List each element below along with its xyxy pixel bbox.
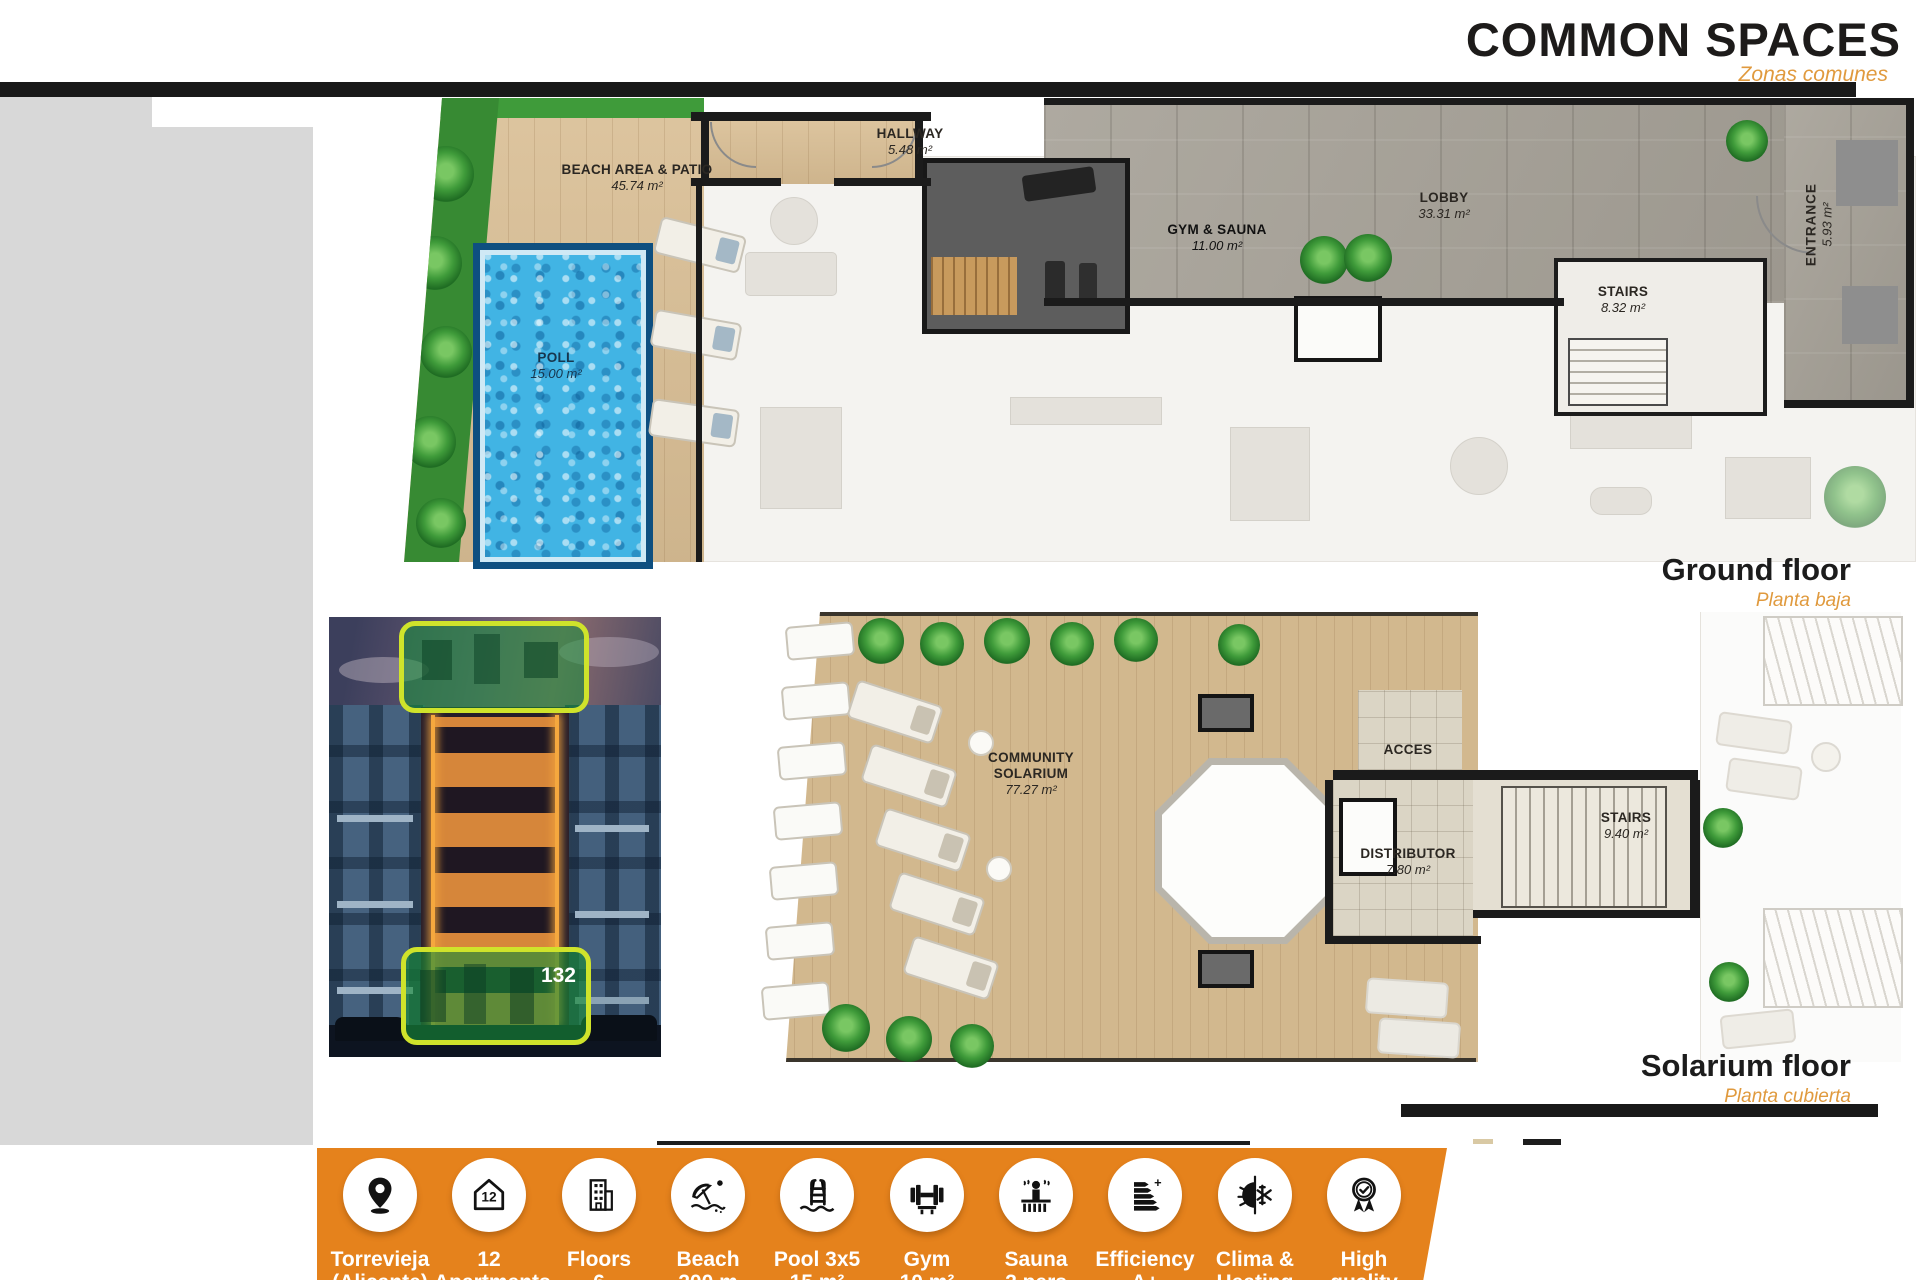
room-label-stairs: STAIRS 8.32 m² [1513, 284, 1733, 315]
svg-text:12: 12 [481, 1189, 497, 1204]
room-label-hallway: HALLWAY 5.48 m² [800, 126, 1020, 157]
wall [1333, 936, 1481, 944]
svg-text:+: + [1154, 1175, 1162, 1190]
roof-hatch [1198, 694, 1254, 732]
room-label-distributor: DISTRIBUTOR 7.80 m² [1298, 846, 1518, 877]
sun-lounger [1715, 711, 1793, 755]
sidebar-gray-panel [0, 127, 313, 1145]
gym-equipment [1079, 263, 1097, 303]
terrace-stairs [1763, 616, 1903, 706]
stairs-room [1554, 258, 1767, 416]
room-label-community-solarium: COMMUNITY SOLARIUM 77.27 m² [956, 750, 1106, 797]
side-table [1811, 742, 1841, 772]
room-label-lobby: LOBBY 33.31 m² [1334, 190, 1554, 221]
entrance-door-panel [1836, 140, 1898, 206]
wall [1044, 298, 1564, 306]
efficiency-icon: + [1123, 1173, 1167, 1217]
entrance-door-panel [1842, 286, 1898, 344]
plant-icon [1344, 234, 1392, 282]
wall [1044, 98, 1914, 105]
gym-dumbbell-icon [905, 1173, 949, 1217]
wall [1473, 910, 1698, 918]
gym-sauna-room [922, 158, 1130, 334]
car-silhouette [335, 1017, 407, 1041]
terrace-stairs [1763, 908, 1903, 1008]
feature-gym: Gym10 m² [872, 1158, 982, 1280]
quality-icon [1342, 1173, 1386, 1217]
feature-location: Torrevieja(Alicante) [325, 1158, 435, 1280]
wall [1690, 780, 1700, 918]
pool [473, 243, 653, 569]
sun-lounger [777, 741, 848, 781]
sun-lounger [1365, 977, 1449, 1019]
climate-icon [1233, 1173, 1277, 1217]
plant-icon [886, 1016, 932, 1062]
highlight-solarium-zone [399, 621, 589, 713]
palm-tree-icon [418, 146, 474, 202]
beach-umbrella-icon [686, 1173, 730, 1217]
footer-divider-bar [1401, 1104, 1878, 1117]
plant-icon [1114, 618, 1158, 662]
sun-lounger [781, 681, 852, 721]
feature-pool: Pool 3x515 m² [762, 1158, 872, 1280]
sun-lounger [1725, 757, 1803, 801]
sauna-icon [1014, 1173, 1058, 1217]
feature-beach: Beach200 m [653, 1158, 763, 1280]
feature-apartments: 12 12Apartments [434, 1158, 544, 1280]
side-table [986, 856, 1012, 882]
decor-dash [1473, 1139, 1493, 1144]
palm-tree-icon [416, 498, 466, 548]
brochure-page: COMMON SPACES Zonas comunes [0, 0, 1920, 1280]
decor-dash [1523, 1139, 1561, 1145]
highlight-ground-zone: 132 [401, 947, 591, 1045]
plant-icon [1709, 962, 1749, 1002]
page-title: COMMON SPACES [1466, 12, 1901, 67]
feature-floors: Floors6 [544, 1158, 654, 1280]
ground-floor-caption-es: Planta baja [1431, 590, 1851, 612]
plant-icon [858, 618, 904, 664]
palm-tree-icon [1824, 466, 1886, 528]
acces-floor [1358, 690, 1462, 770]
plant-icon [1726, 120, 1768, 162]
car-silhouette [581, 1015, 657, 1041]
room-label-pool: POLL 15.00 m² [496, 350, 616, 381]
building-photo: 132 [329, 617, 661, 1057]
room-label-entrance: ENTRANCE 5.93 m² [1803, 140, 1834, 310]
unit-badge: 132 [541, 964, 576, 988]
room-label-acces: ACCES [1348, 742, 1468, 758]
plant-icon [920, 622, 964, 666]
ground-floor-caption: Ground floor [1431, 552, 1851, 588]
floors-icon [577, 1173, 621, 1217]
wall [1906, 98, 1914, 408]
sun-lounger [1719, 1008, 1796, 1050]
wall [691, 112, 931, 121]
room-label-gym: GYM & SAUNA 11.00 m² [1107, 222, 1327, 253]
feature-sauna: Sauna2 pers [981, 1158, 1091, 1280]
apartments-icon: 12 [467, 1173, 511, 1217]
room-label-beach: BEACH AREA & PATIO 45.74 m² [527, 162, 747, 193]
room-label-solarium-stairs: STAIRS 9.40 m² [1516, 810, 1736, 841]
location-pin-icon [358, 1173, 402, 1217]
plant-icon [822, 1004, 870, 1052]
wall [1333, 770, 1698, 780]
sun-lounger [765, 921, 836, 961]
feature-climate: Clima &Heating [1200, 1158, 1310, 1280]
plant-icon [1218, 624, 1260, 666]
wall [696, 184, 702, 562]
sidebar-gray-panel [0, 97, 152, 127]
sauna-bench [931, 257, 1017, 315]
palm-tree-icon [408, 236, 462, 290]
solarium-floor-caption: Solarium floor [1431, 1048, 1851, 1084]
sun-lounger [785, 621, 856, 661]
palm-tree-icon [420, 326, 472, 378]
wall [1784, 400, 1914, 408]
solarium-floor-plan: COMMUNITY SOLARIUM 77.27 m² ACCES DISTRI… [758, 612, 1900, 1062]
sun-lounger [761, 981, 832, 1021]
ground-floor-plan: BEACH AREA & PATIO 45.74 m² POLL 15.00 m… [404, 98, 1914, 572]
decor-line [657, 1141, 1250, 1145]
wall [834, 178, 931, 186]
sun-lounger [769, 861, 840, 901]
stair-treads [1568, 338, 1668, 406]
roof-hatch [1198, 950, 1254, 988]
palm-tree-icon [404, 416, 456, 468]
feature-efficiency: + EfficiencyA+ [1090, 1158, 1200, 1280]
stair-treads [1501, 786, 1667, 908]
plant-icon [950, 1024, 994, 1068]
gym-equipment [1022, 166, 1097, 202]
plant-icon [1050, 622, 1094, 666]
sun-lounger [773, 801, 844, 841]
header-divider-bar [0, 82, 1856, 97]
feature-quality: Highquality [1309, 1158, 1419, 1280]
pool-ladder-icon [795, 1173, 839, 1217]
plant-icon [984, 618, 1030, 664]
